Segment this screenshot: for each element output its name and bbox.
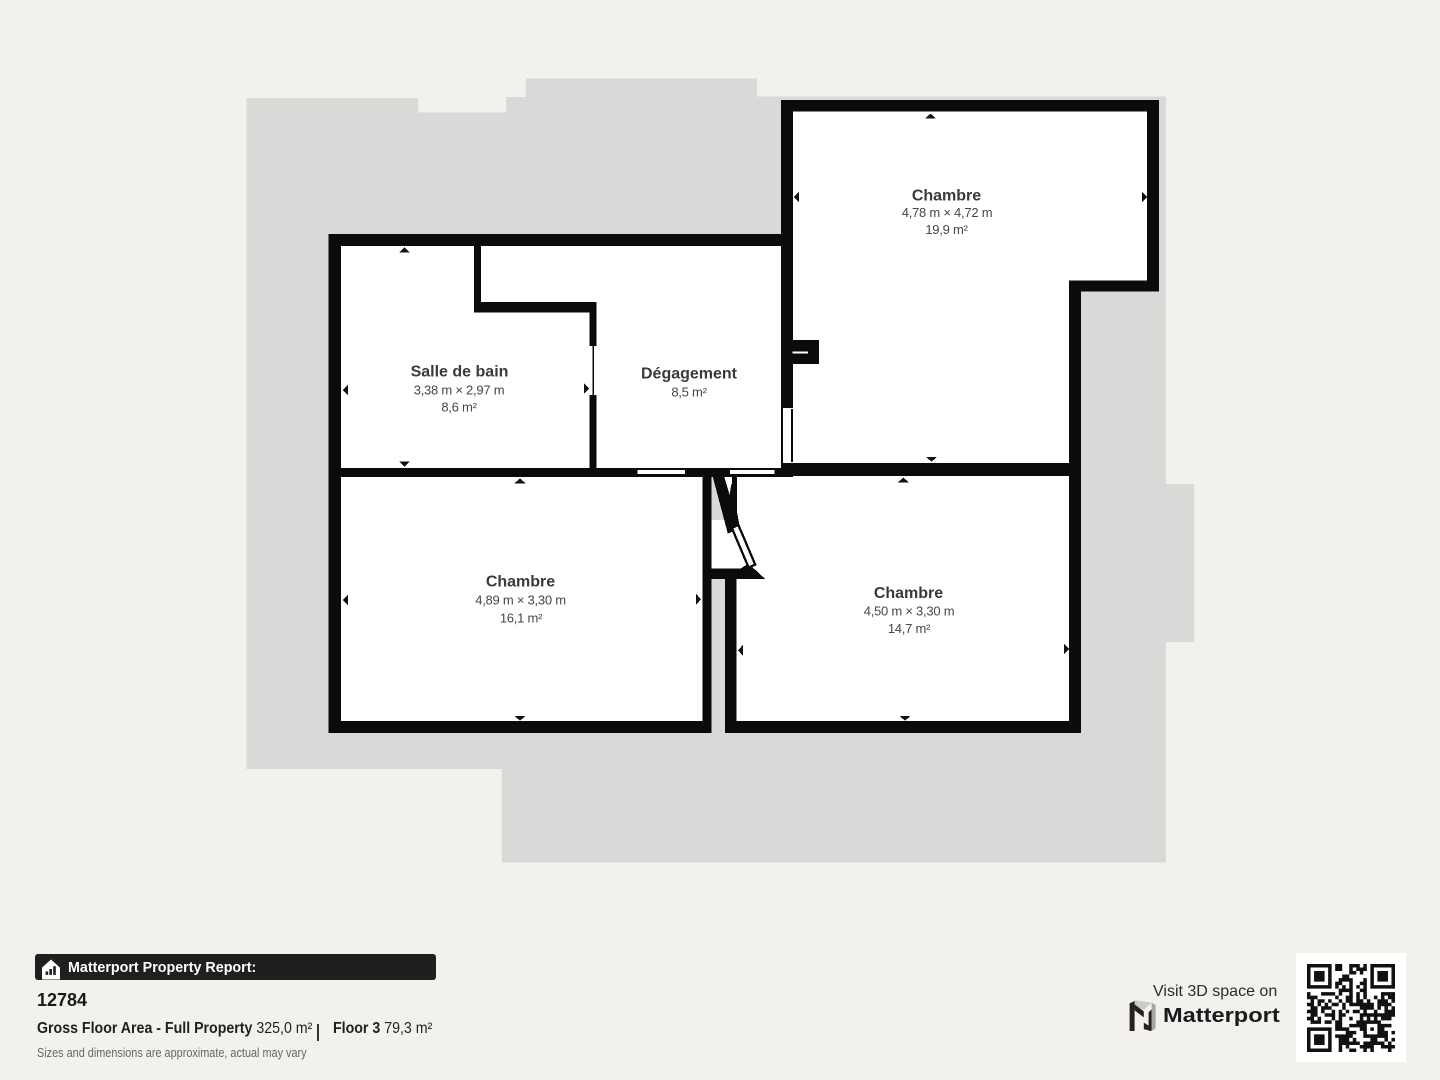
- svg-text:Chambre: Chambre: [874, 585, 943, 602]
- svg-text:8,6 m²: 8,6 m²: [441, 400, 477, 415]
- svg-text:Salle de bain: Salle de bain: [411, 364, 509, 381]
- svg-text:4,50 m × 3,30 m: 4,50 m × 3,30 m: [864, 604, 955, 619]
- svg-text:3,38 m × 2,97 m: 3,38 m × 2,97 m: [414, 383, 505, 398]
- svg-text:4,89 m × 3,30 m: 4,89 m × 3,30 m: [475, 593, 566, 608]
- svg-text:14,7 m²: 14,7 m²: [888, 621, 931, 636]
- svg-text:Chambre: Chambre: [912, 188, 981, 205]
- svg-text:16,1 m²: 16,1 m²: [500, 611, 543, 626]
- svg-text:8,5 m²: 8,5 m²: [671, 385, 707, 400]
- svg-text:Chambre: Chambre: [486, 574, 555, 591]
- svg-text:Dégagement: Dégagement: [641, 366, 738, 383]
- svg-text:19,9 m²: 19,9 m²: [925, 222, 968, 237]
- svg-text:4,78 m × 4,72 m: 4,78 m × 4,72 m: [902, 205, 993, 220]
